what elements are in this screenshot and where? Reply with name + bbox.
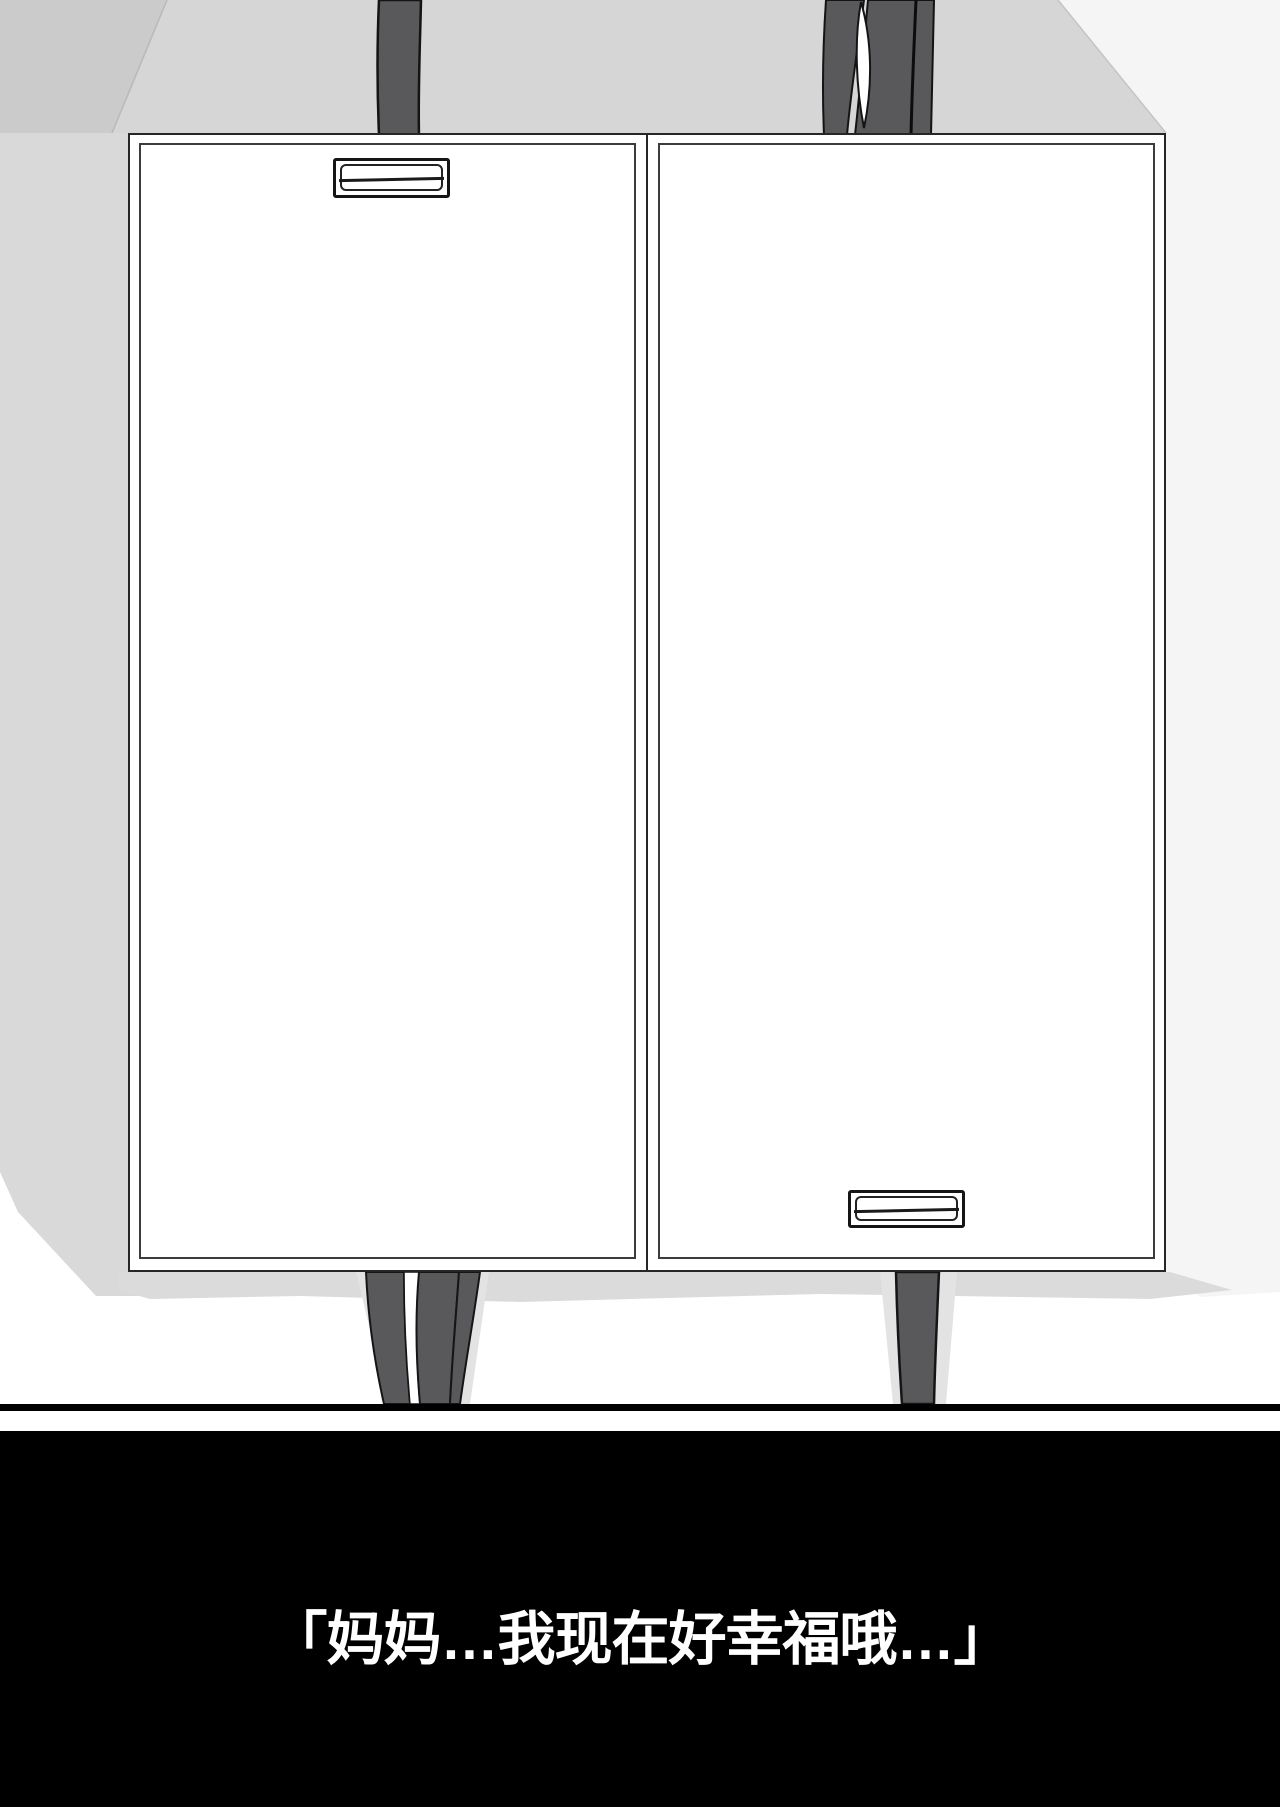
door-left-handle (333, 158, 450, 198)
top-backdrop (0, 0, 1166, 133)
illustration-panel (0, 0, 1280, 1404)
left-wall-shade (0, 133, 148, 1296)
floor-shadow (118, 1272, 1232, 1302)
panel-frame-line (0, 1404, 1280, 1411)
manga-page: 「妈妈…我现在好幸福哦…」 (0, 0, 1280, 1807)
cabinet (128, 133, 1166, 1272)
cabinet-door-right (658, 143, 1155, 1259)
top-left-strap-icon (378, 0, 422, 135)
right-wall-highlight (1166, 133, 1280, 1297)
panel-gutter (0, 1411, 1280, 1431)
door-right-handle (848, 1190, 965, 1228)
caption-band: 「妈妈…我现在好幸福哦…」 (0, 1431, 1280, 1807)
cabinet-door-left (139, 143, 636, 1259)
bottom-right-strap-icon (896, 1272, 939, 1404)
caption-text: 「妈妈…我现在好幸福哦…」 (0, 1607, 1280, 1673)
cabinet-door-divider (646, 135, 648, 1270)
